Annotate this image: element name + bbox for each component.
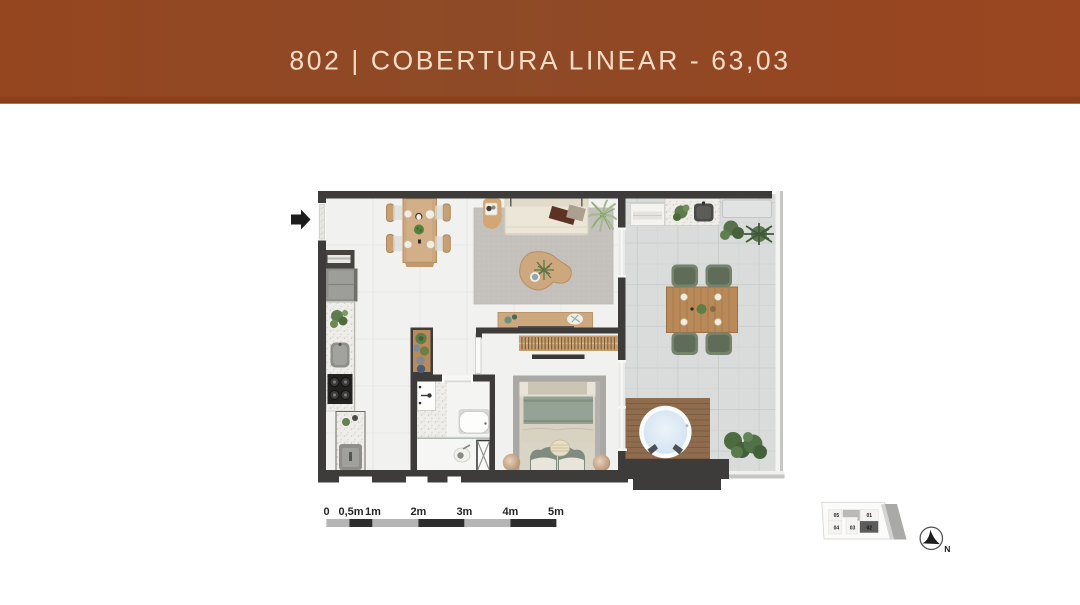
- svg-text:2m: 2m: [410, 506, 426, 518]
- svg-text:01: 01: [867, 513, 873, 519]
- svg-text:4m: 4m: [502, 506, 518, 518]
- svg-text:802 | COBERTURA LINEAR - 63,03: 802 | COBERTURA LINEAR - 63,03: [289, 46, 790, 76]
- svg-text:1m: 1m: [365, 506, 381, 518]
- svg-text:0,5m: 0,5m: [338, 506, 363, 518]
- svg-text:N: N: [944, 544, 950, 554]
- svg-text:5m: 5m: [548, 506, 564, 518]
- svg-text:04: 04: [834, 526, 840, 532]
- svg-text:3m: 3m: [456, 506, 472, 518]
- svg-text:03: 03: [850, 526, 856, 532]
- svg-text:0: 0: [323, 506, 329, 518]
- svg-text:02: 02: [867, 526, 873, 532]
- svg-text:05: 05: [834, 513, 840, 519]
